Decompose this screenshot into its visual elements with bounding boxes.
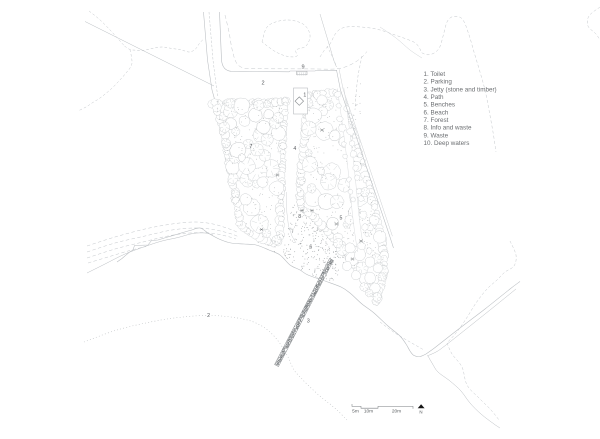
svg-text:5m: 5m bbox=[352, 409, 359, 415]
svg-text:6: 6 bbox=[309, 245, 312, 251]
svg-text:6. Beach: 6. Beach bbox=[424, 109, 449, 116]
svg-text:10m: 10m bbox=[364, 409, 373, 415]
svg-text:8: 8 bbox=[298, 214, 301, 220]
svg-text:9. Waste: 9. Waste bbox=[424, 132, 449, 139]
svg-text:3. Jetty (stone and timber): 3. Jetty (stone and timber) bbox=[424, 86, 497, 93]
svg-text:20m: 20m bbox=[392, 409, 401, 415]
svg-text:7: 7 bbox=[249, 144, 252, 150]
svg-text:1: 1 bbox=[303, 92, 306, 98]
svg-text:5. Benches: 5. Benches bbox=[424, 102, 456, 109]
svg-text:9: 9 bbox=[301, 64, 304, 70]
svg-text:8. Info and waste: 8. Info and waste bbox=[424, 125, 472, 132]
svg-text:7. Forest: 7. Forest bbox=[424, 117, 449, 124]
svg-text:4: 4 bbox=[293, 146, 296, 152]
svg-text:10. Deep waters: 10. Deep waters bbox=[424, 140, 470, 147]
svg-text:2. Parking: 2. Parking bbox=[424, 79, 453, 86]
svg-text:1. Toilet: 1. Toilet bbox=[424, 71, 446, 78]
svg-text:N: N bbox=[419, 409, 422, 414]
svg-text:5: 5 bbox=[340, 215, 343, 221]
svg-text:2: 2 bbox=[261, 80, 264, 86]
svg-text:3: 3 bbox=[307, 318, 310, 324]
svg-text:2: 2 bbox=[207, 313, 210, 319]
svg-text:4. Path: 4. Path bbox=[424, 94, 444, 101]
